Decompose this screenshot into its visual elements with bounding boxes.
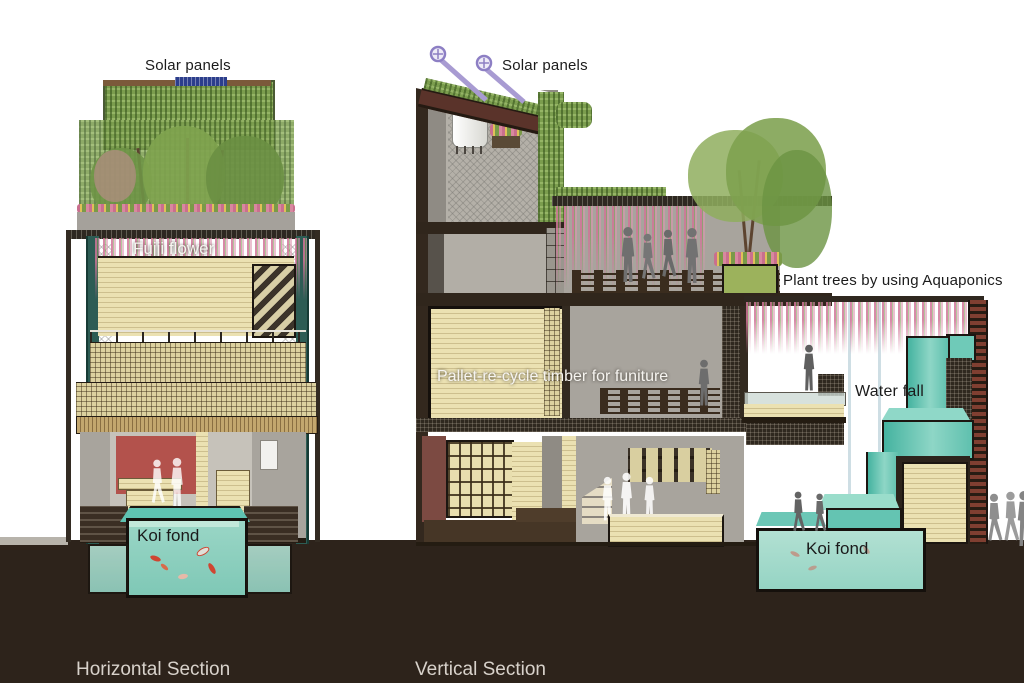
timber-pillar-ground (562, 436, 576, 516)
floor-divider-post (562, 306, 570, 418)
title-vertical-section: Vertical Section (415, 659, 546, 681)
weave-band-lower (76, 382, 316, 417)
person-silhouette-terrace (656, 224, 681, 284)
platform-step (516, 508, 576, 522)
lattice-pane (544, 308, 560, 416)
side-pond-right (246, 544, 292, 594)
label-plant-trees: Plant trees by using Aquaponics (783, 272, 1003, 289)
upper-room-interior (428, 234, 560, 294)
garden-tree-blossom (94, 150, 136, 202)
upper-room-dark-wall (428, 234, 444, 294)
louver-deck-right (244, 506, 298, 542)
balcony-slab-timber (744, 404, 844, 417)
waterfall-tank-top (882, 408, 970, 420)
weave-band-upper (90, 342, 306, 383)
person-silhouette-balcony (799, 340, 819, 396)
person-silhouette-pond-walker (788, 487, 809, 537)
balcony-soffit-lattice (746, 423, 844, 445)
timber-grid-shelving (446, 440, 514, 518)
solar-collector-tubes (424, 40, 584, 112)
louver-deck-left (80, 506, 128, 542)
person-silhouette-street (1012, 490, 1024, 548)
architectural-sections-canvas: Solar panels Fujji flower (0, 0, 1024, 683)
frame-post-left (66, 230, 71, 542)
person-silhouette-terrace (680, 227, 704, 285)
tank-stand (456, 146, 482, 154)
koi-pond-tank-right (756, 528, 926, 592)
person-silhouette-midfloor (694, 352, 714, 414)
label-koi-pond-right: Koi fond (806, 539, 868, 559)
solar-panel-array (175, 77, 227, 86)
label-solar-panels-left: Solar panels (145, 57, 231, 74)
title-horizontal-section: Horizontal Section (76, 659, 230, 681)
attic-flower-planter (492, 136, 520, 148)
maroon-wall (422, 436, 446, 522)
timber-platform (424, 520, 576, 543)
timber-pillar (196, 432, 208, 510)
ground-floor-line (416, 542, 756, 546)
lattice-pane-right (722, 306, 740, 418)
label-solar-panels-right: Solar panels (502, 57, 588, 74)
window-opening (260, 440, 278, 470)
label-koi-pond-left: Koi fond (137, 526, 199, 546)
terrace-tree-canopy (762, 150, 832, 268)
lattice-pane-ground (706, 450, 720, 494)
service-slab (416, 418, 746, 432)
person-silhouette-white (166, 457, 188, 510)
label-pallet-timber: Pallet-re-cycle timber for funiture (437, 368, 668, 386)
person-silhouette-pond-walker (810, 489, 830, 537)
label-water-fall: Water fall (855, 383, 924, 401)
sidewalk-left (0, 537, 68, 545)
stair-block (252, 264, 296, 338)
side-pond-left (88, 544, 128, 594)
